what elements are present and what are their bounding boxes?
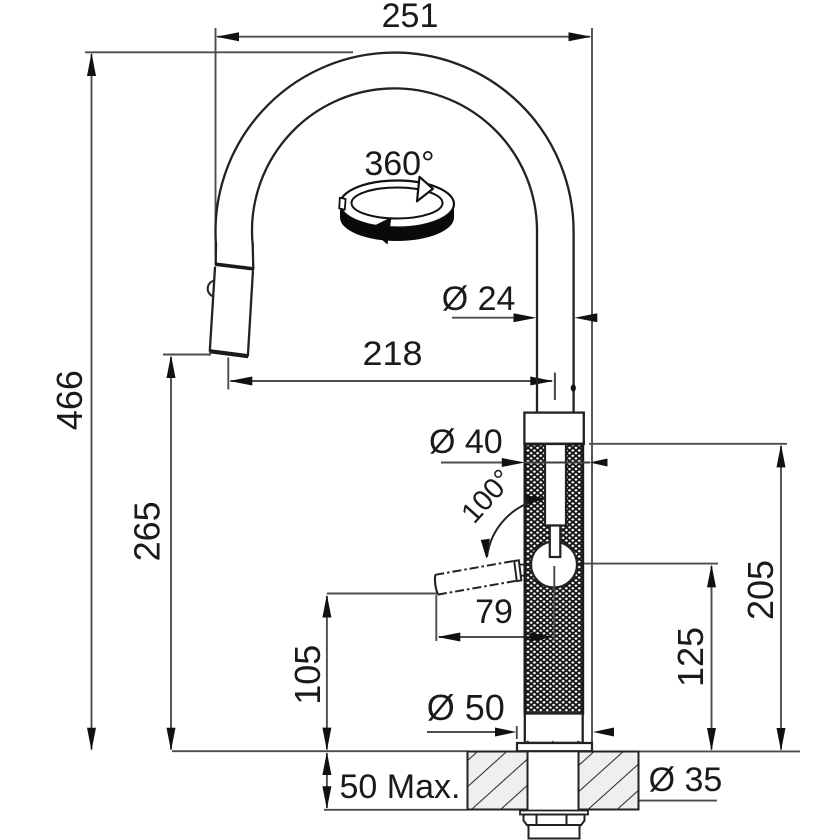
svg-text:251: 251 <box>382 0 439 35</box>
svg-text:265: 265 <box>127 501 168 561</box>
svg-text:466: 466 <box>49 370 90 430</box>
svg-text:360°: 360° <box>364 145 434 183</box>
svg-text:Ø 50: Ø 50 <box>427 687 505 728</box>
svg-text:125: 125 <box>670 627 711 687</box>
svg-text:218: 218 <box>363 335 423 373</box>
svg-text:79: 79 <box>475 593 513 631</box>
svg-text:205: 205 <box>740 560 781 620</box>
svg-text:Ø 35: Ø 35 <box>649 761 723 799</box>
svg-text:Ø 24: Ø 24 <box>442 280 516 318</box>
svg-text:105: 105 <box>287 645 328 705</box>
svg-text:Ø 40: Ø 40 <box>429 423 503 461</box>
svg-text:50 Max.: 50 Max. <box>340 768 461 806</box>
